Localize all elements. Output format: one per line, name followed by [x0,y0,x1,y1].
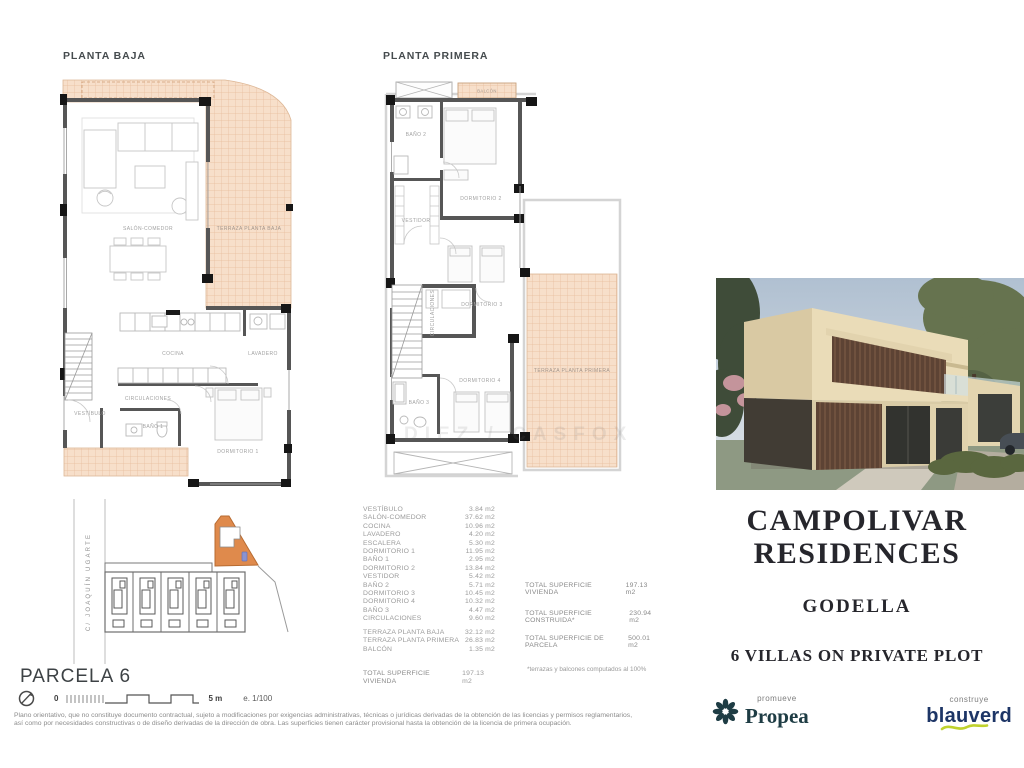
project-block: CAMPOLIVAR RESIDENCES GODELLA 6 VILLAS O… [690,504,1024,666]
terrace-area [63,80,291,308]
table-row: ESCALERA5.30 m2 [363,540,495,548]
table-row: VESTIDOR5.42 m2 [363,573,495,581]
project-tagline: 6 VILLAS ON PRIVATE PLOT [690,646,1024,666]
label-bano1: BAÑO 1 [143,423,164,430]
parcel-marker [242,552,247,561]
label-dormitorio1: DORMITORIO 1 [217,449,258,455]
street-label: C/ JOAQUÍN UGARTE [85,533,92,631]
scale-ratio: e. 1/100 [243,694,272,703]
label-salon: SALÓN-COMEDOR [123,225,173,232]
table-row: BAÑO 25.71 m2 [363,582,495,590]
table-row: COCINA10.96 m2 [363,523,495,531]
scale-length: 5 m [208,694,222,703]
total-parcela: TOTAL SUPERFICIE DE PARCELA500.01 m2 [525,635,659,649]
bed-dormitorio1 [206,388,271,440]
site-plan: C/ JOAQUÍN UGARTE [58,494,318,669]
label-terraza-pb: TERRAZA PLANTA BAJA [217,226,282,232]
disclaimer-line2: así como por necesidades constructivas o… [14,720,1008,728]
north-arrow-icon [18,690,35,707]
living-room-furniture [82,118,198,280]
label-balcon: BALCÓN [477,89,497,94]
project-name-line1: CAMPOLIVAR [690,504,1024,537]
label-lavadero: LAVADERO [248,351,278,357]
plan-sheet: PLANTA BAJA PLANTA PRIMERA [0,0,1024,768]
table-row: BAÑO 12.95 m2 [363,556,495,564]
watermark: DIEZ / CASFOX [404,424,633,446]
disclaimer-line1: Plano orientativo, que no constituye doc… [14,712,1008,720]
table-row: TERRAZA PLANTA BAJA32.12 m2 [363,629,495,637]
bath2-fixtures [394,106,432,174]
label-circulaciones-pp: CIRCULACIONES [430,290,436,337]
table-row: LAVADERO4.20 m2 [363,531,495,539]
total-vivienda: TOTAL SUPERFICIE VIVIENDA197.13 m2 [525,582,659,596]
project-name-line2: RESIDENCES [690,537,1024,570]
totals-block: TOTAL SUPERFICIE VIVIENDA197.13 m2 TOTAL… [525,578,659,678]
kitchen-counters [118,313,285,383]
project-name: CAMPOLIVAR RESIDENCES [690,504,1024,570]
label-dormitorio4: DORMITORIO 4 [459,378,500,384]
table-row: DORMITORIO 310.45 m2 [363,590,495,598]
label-bano2: BAÑO 2 [406,131,427,138]
label-circulaciones-pb: CIRCULACIONES [125,396,172,402]
label-dormitorio3: DORMITORIO 3 [461,302,502,308]
table-row: SALÓN-COMEDOR37.62 m2 [363,514,495,522]
villa-render [716,278,1024,490]
label-terraza-pp: TERRAZA PLANTA PRIMERA [534,368,610,374]
scale-row: 0 5 m e. 1/100 [18,690,272,707]
label-vestidor: VESTIDOR [402,218,431,224]
project-location: GODELLA [690,596,1024,618]
planta-baja-floorplan: SALÓN-COMEDOR TERRAZA PLANTA BAJA COCINA… [60,78,298,490]
scale-zero: 0 [54,694,58,703]
table-row: DORMITORIO 213.84 m2 [363,565,495,573]
planta-primera-title: PLANTA PRIMERA [383,50,488,62]
wardrobes [395,186,439,244]
parcela-title: PARCELA 6 [20,666,131,688]
stairs [65,333,92,400]
planta-baja-title: PLANTA BAJA [63,50,146,62]
builder-role: construye [950,695,989,704]
table-row: CIRCULACIONES9.60 m2 [363,615,495,623]
stairs-pp [392,285,422,378]
bed-dormitorio2 [444,108,496,180]
beds-dormitorio3 [448,246,504,282]
table-row: BAÑO 34.47 m2 [363,607,495,615]
label-bano3: BAÑO 3 [409,399,430,406]
table-total-row: TOTAL SUPERFICIE VIVIENDA197.13 m2 [363,670,495,687]
area-table: VESTÍBULO3.84 m2 SALÓN-COMEDOR37.62 m2 C… [363,506,495,687]
table-row: TERRAZA PLANTA PRIMERA26.83 m2 [363,637,495,645]
label-dormitorio2: DORMITORIO 2 [460,196,501,202]
label-cocina: COCINA [162,351,184,357]
total-construida: TOTAL SUPERFICIE CONSTRUIDA*230.94 m2 [525,610,659,624]
table-footnote: *terrazas y balcones computados al 100% [527,666,646,673]
developer-role: promueve [757,694,797,703]
table-row: DORMITORIO 410.32 m2 [363,598,495,606]
label-vestibulo: VESTÍBULO [74,410,106,417]
table-row: BALCÓN1.35 m2 [363,646,495,654]
scale-bar [65,693,201,705]
disclaimer: Plano orientativo, que no constituye doc… [14,712,1008,728]
